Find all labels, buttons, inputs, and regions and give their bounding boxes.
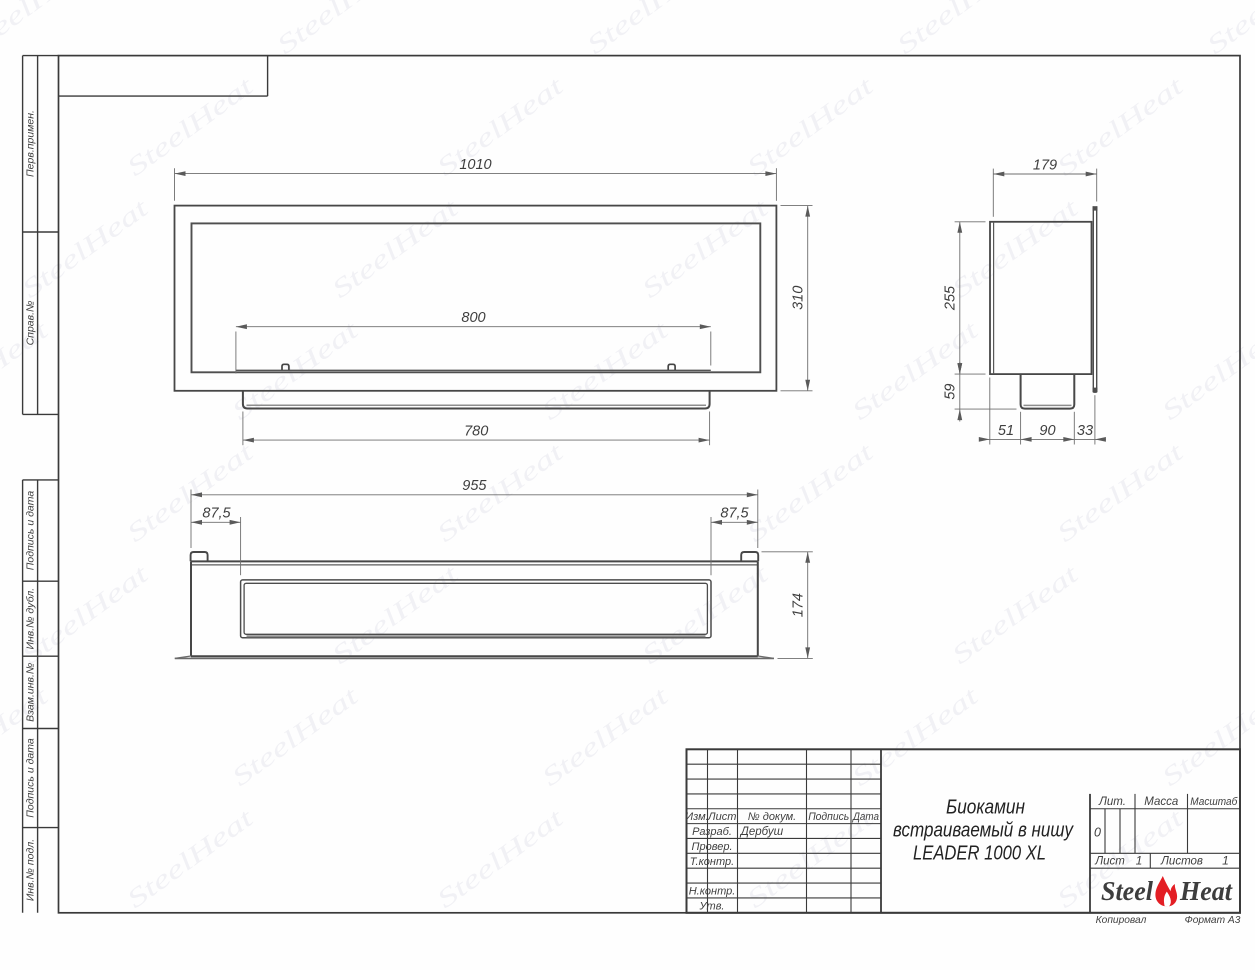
svg-text:51: 51 xyxy=(998,423,1014,439)
svg-text:174: 174 xyxy=(791,593,807,617)
svg-text:87,5: 87,5 xyxy=(202,506,231,522)
svg-text:Формат А3: Формат А3 xyxy=(1185,915,1241,926)
svg-text:Справ.№: Справ.№ xyxy=(25,301,37,346)
svg-text:Листов: Листов xyxy=(1160,855,1203,867)
svg-text:Steel: Steel xyxy=(1101,876,1153,906)
svg-text:955: 955 xyxy=(462,478,487,494)
svg-text:Инв.№ дубл.: Инв.№ дубл. xyxy=(25,588,37,650)
svg-text:Подпись и дата: Подпись и дата xyxy=(25,491,37,571)
svg-text:87,5: 87,5 xyxy=(720,506,749,522)
svg-text:1: 1 xyxy=(1222,853,1229,867)
svg-text:90: 90 xyxy=(1039,423,1055,439)
svg-text:Копировал: Копировал xyxy=(1096,915,1147,926)
svg-text:Перв.примен.: Перв.примен. xyxy=(25,110,37,177)
svg-text:Heat: Heat xyxy=(1179,876,1233,906)
svg-text:Лит.: Лит. xyxy=(1098,796,1126,808)
svg-text:780: 780 xyxy=(464,423,488,439)
svg-text:Подпись и дата: Подпись и дата xyxy=(25,738,37,818)
svg-text:Инв.№ подл.: Инв.№ подл. xyxy=(25,839,37,901)
svg-text:Н.контр.: Н.контр. xyxy=(689,886,736,898)
svg-text:255: 255 xyxy=(943,285,959,311)
svg-text:Биокамин: Биокамин xyxy=(946,797,1025,819)
svg-text:59: 59 xyxy=(943,384,959,400)
svg-text:Провер.: Провер. xyxy=(692,841,733,853)
svg-text:1010: 1010 xyxy=(459,157,491,173)
svg-text:встраиваемый в нишу: встраиваемый в нишу xyxy=(893,820,1074,842)
svg-text:1: 1 xyxy=(1136,853,1143,867)
svg-text:310: 310 xyxy=(791,286,807,310)
svg-text:0: 0 xyxy=(1094,826,1101,840)
svg-text:Масштаб: Масштаб xyxy=(1190,796,1238,808)
svg-text:800: 800 xyxy=(461,310,485,326)
svg-text:Лист: Лист xyxy=(707,811,736,823)
svg-text:Взам.инв.№: Взам.инв.№ xyxy=(25,663,37,722)
svg-text:Утв.: Утв. xyxy=(699,900,725,912)
svg-text:33: 33 xyxy=(1077,423,1093,439)
svg-text:№ докум.: № докум. xyxy=(748,811,796,823)
svg-text:Разраб.: Разраб. xyxy=(692,826,732,838)
svg-text:Подпись: Подпись xyxy=(808,811,849,823)
svg-text:Изм.: Изм. xyxy=(685,811,708,823)
svg-text:Дербуш: Дербуш xyxy=(739,826,784,838)
svg-text:LEADER 1000 XL: LEADER 1000 XL xyxy=(913,843,1046,865)
svg-text:Т.контр.: Т.контр. xyxy=(690,856,734,868)
svg-text:Масса: Масса xyxy=(1144,796,1178,808)
svg-text:Дата: Дата xyxy=(851,811,879,823)
svg-text:Лист: Лист xyxy=(1094,855,1125,867)
svg-text:179: 179 xyxy=(1033,158,1057,174)
